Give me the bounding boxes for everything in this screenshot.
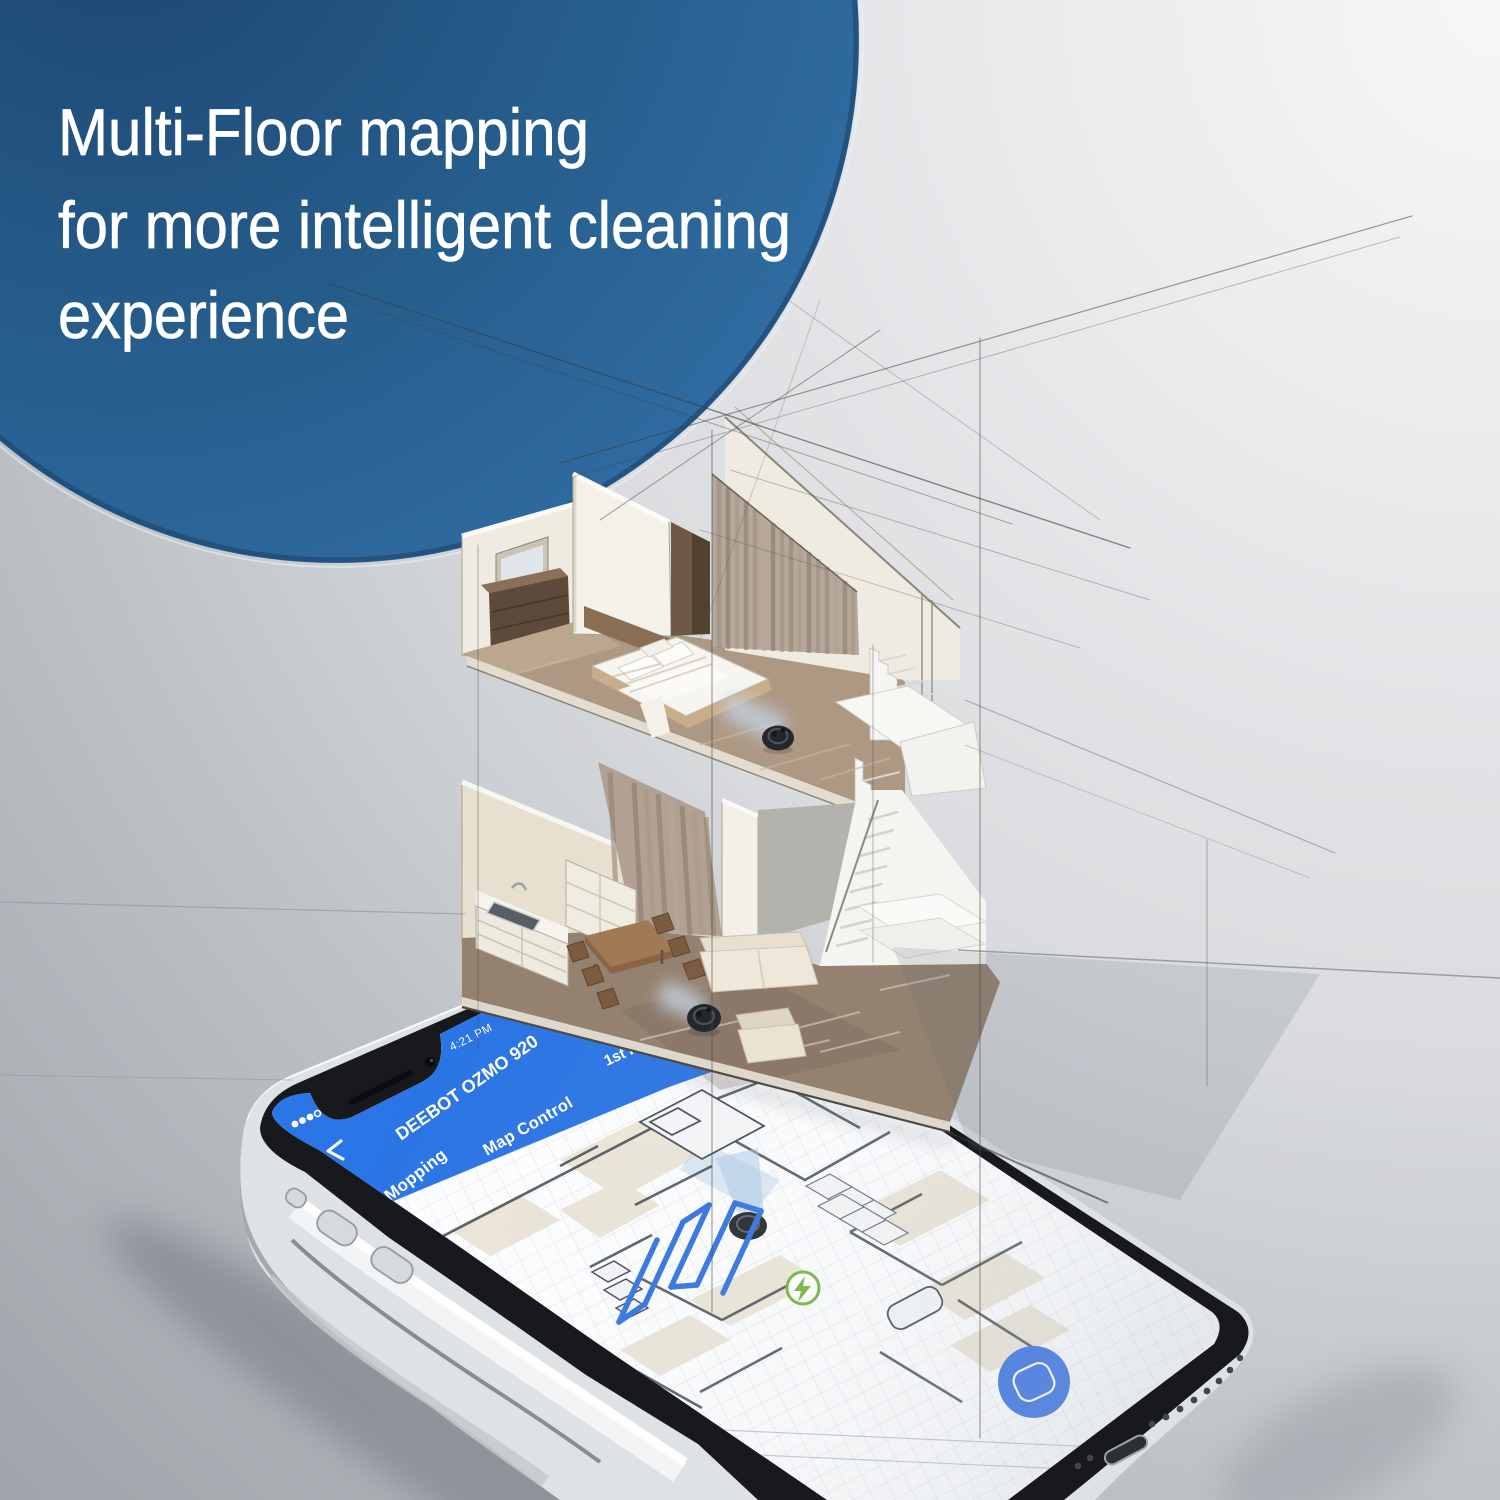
svg-text:experience: experience <box>58 278 349 352</box>
svg-text:for more intelligent cleaning: for more intelligent cleaning <box>58 188 791 262</box>
svg-text:Multi-Floor mapping: Multi-Floor mapping <box>58 95 589 169</box>
